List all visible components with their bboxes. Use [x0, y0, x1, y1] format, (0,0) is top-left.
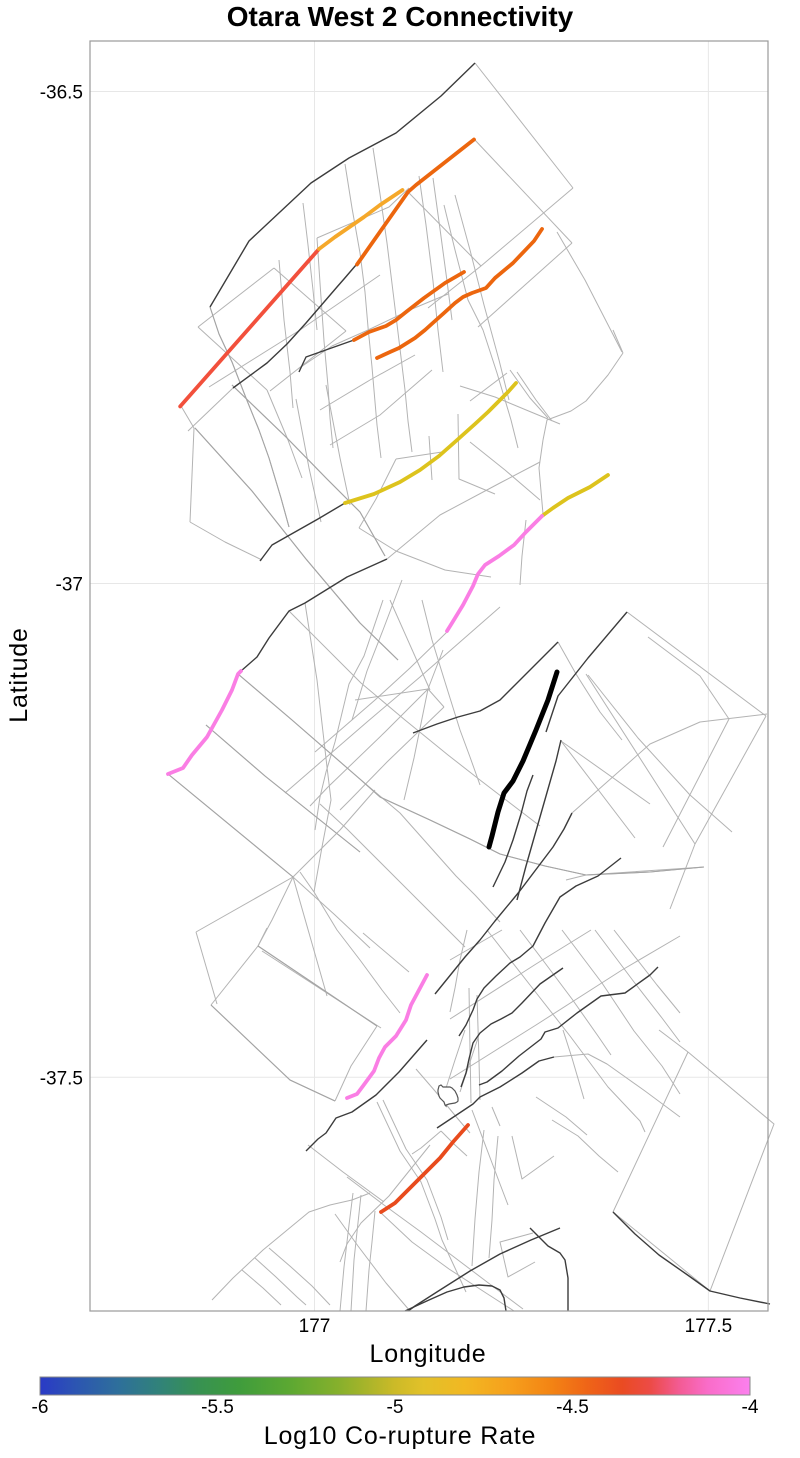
svg-text:-5: -5: [387, 1397, 404, 1418]
svg-text:Log10 Co-rupture Rate: Log10 Co-rupture Rate: [264, 1422, 537, 1450]
svg-text:Otara West 2 Connectivity: Otara West 2 Connectivity: [227, 1, 574, 32]
svg-text:-4: -4: [742, 1397, 759, 1418]
svg-text:-36.5: -36.5: [40, 83, 83, 104]
svg-text:177.5: 177.5: [685, 1316, 733, 1337]
svg-text:-5.5: -5.5: [201, 1397, 234, 1418]
svg-text:Longitude: Longitude: [369, 1340, 486, 1368]
svg-text:-6: -6: [32, 1397, 49, 1418]
svg-text:Latitude: Latitude: [5, 627, 33, 722]
svg-text:-37.5: -37.5: [40, 1068, 83, 1089]
svg-text:-4.5: -4.5: [556, 1397, 589, 1418]
svg-text:177: 177: [299, 1316, 331, 1337]
svg-text:-37: -37: [56, 575, 83, 596]
